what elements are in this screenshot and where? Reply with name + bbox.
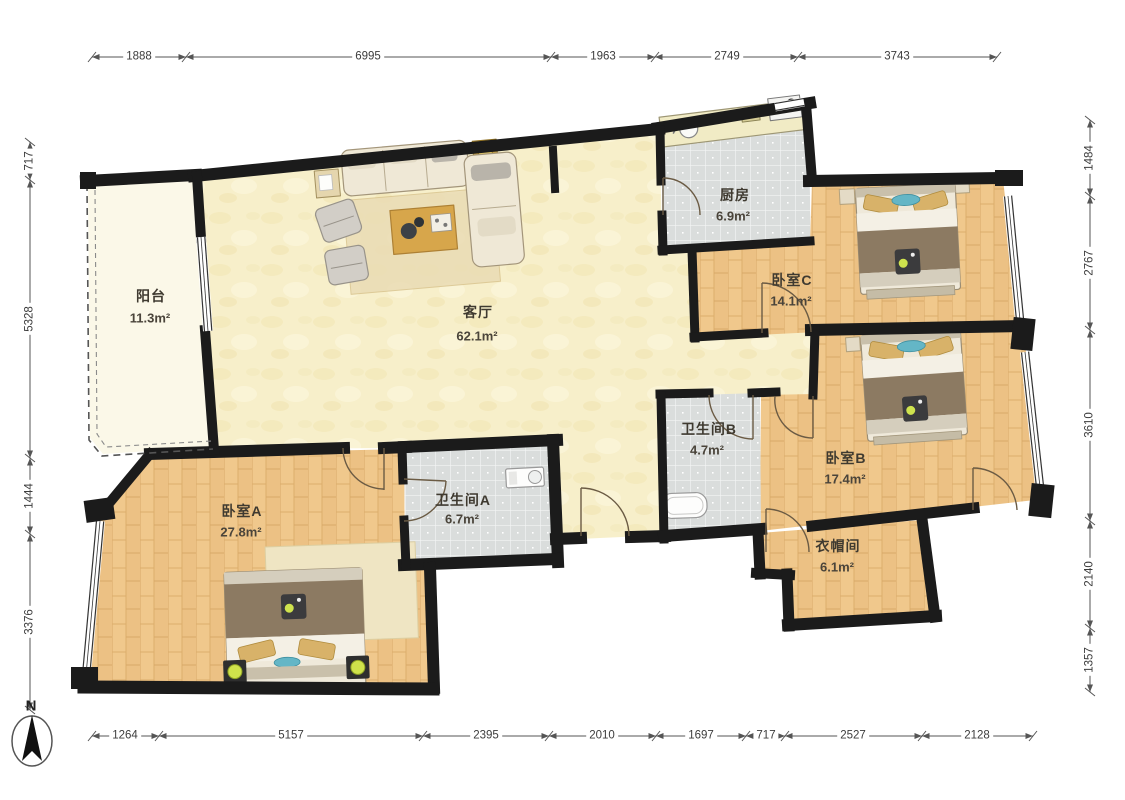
floor-plan-drawing (0, 0, 1125, 800)
bed-tray (281, 594, 307, 620)
nightstand (846, 337, 861, 352)
papers (319, 175, 333, 191)
sofa-cushion (477, 216, 516, 237)
bed-tray (894, 248, 920, 274)
nightstand (839, 189, 855, 205)
compass-icon (12, 715, 52, 766)
washing-machine (506, 467, 545, 488)
bathroom-a-floor (404, 441, 557, 566)
balcony-floor (88, 177, 213, 454)
floor-plan-page: 阳台 11.3m² 客厅 62.1m² 厨房 6.9m² 卧室C 14.1m² … (0, 0, 1125, 800)
tray (430, 213, 451, 232)
bed-tray (902, 395, 929, 422)
